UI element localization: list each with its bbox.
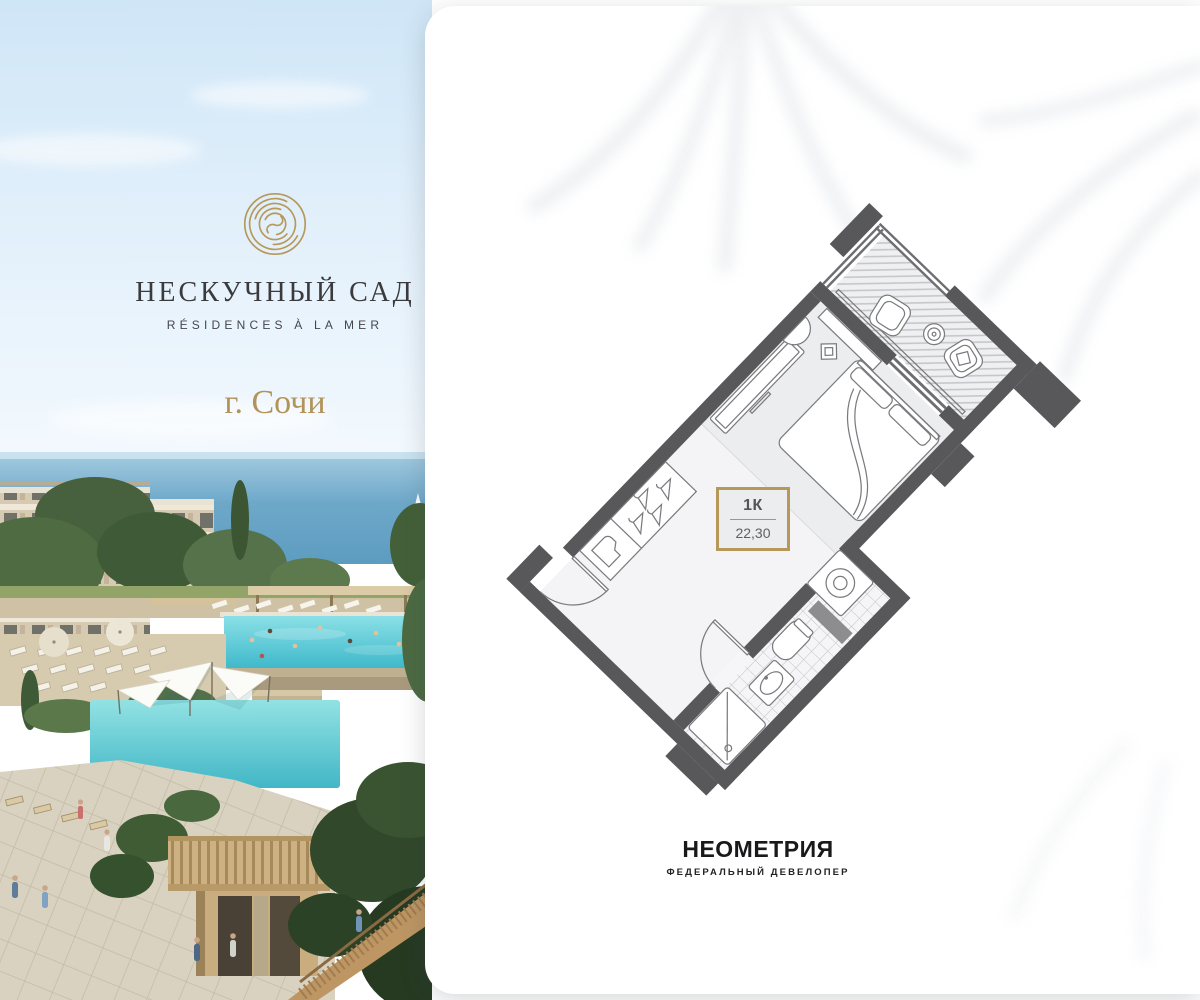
- developer-tagline: ФЕДЕРАЛЬНЫЙ ДЕВЕЛОПЕР: [648, 867, 868, 878]
- plan-card: 1К 22,30 НЕОМЕТРИЯ ФЕДЕРАЛЬНЫЙ ДЕВЕЛОПЕР: [425, 6, 1200, 994]
- developer-logo: НЕОМЕТРИЯ ФЕДЕРАЛЬНЫЙ ДЕВЕЛОПЕР: [648, 836, 868, 878]
- resort-scene: [0, 0, 432, 1000]
- unit-type: 1К: [743, 497, 763, 515]
- resort-photo: НЕСКУЧНЫЙ САД RÉSIDENCES À LA MER г. Соч…: [0, 0, 432, 1000]
- sky: [0, 0, 432, 462]
- developer-name: НЕОМЕТРИЯ: [648, 836, 868, 863]
- flyer-root: НЕСКУЧНЫЙ САД RÉSIDENCES À LA MER г. Соч…: [0, 0, 1200, 1000]
- unit-area: 22,30: [735, 525, 770, 541]
- unit-divider: [730, 519, 776, 520]
- unit-label-box: 1К 22,30: [716, 487, 790, 551]
- stool: [821, 344, 836, 359]
